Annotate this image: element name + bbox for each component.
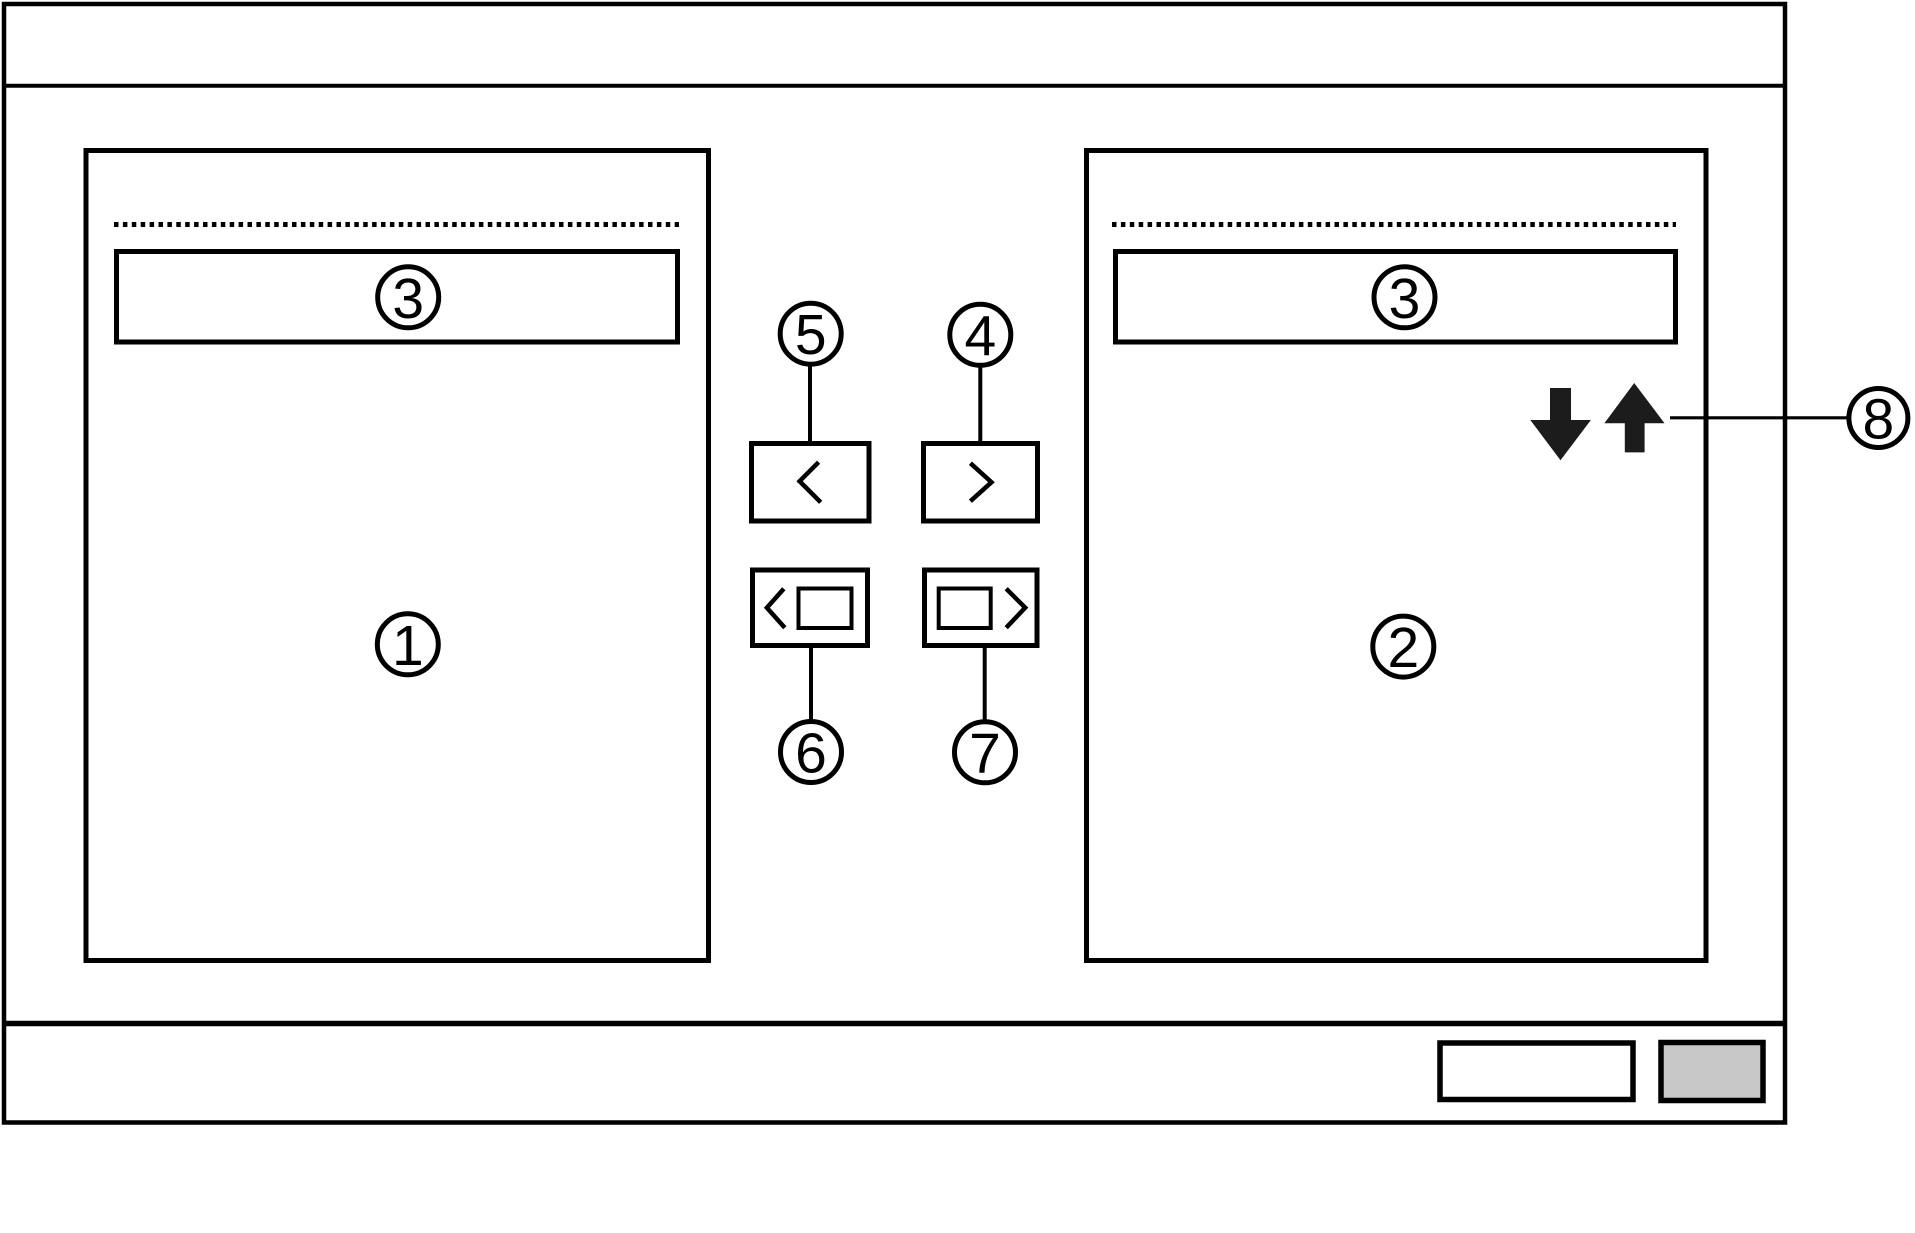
svg-text:3: 3 <box>392 267 424 331</box>
svg-text:2: 2 <box>1387 616 1419 680</box>
svg-text:4: 4 <box>964 304 996 368</box>
svg-text:7: 7 <box>969 722 1001 786</box>
svg-text:6: 6 <box>795 722 827 786</box>
svg-text:5: 5 <box>795 303 827 367</box>
svg-text:3: 3 <box>1389 267 1421 331</box>
svg-text:8: 8 <box>1863 388 1895 452</box>
svg-text:1: 1 <box>392 614 424 678</box>
